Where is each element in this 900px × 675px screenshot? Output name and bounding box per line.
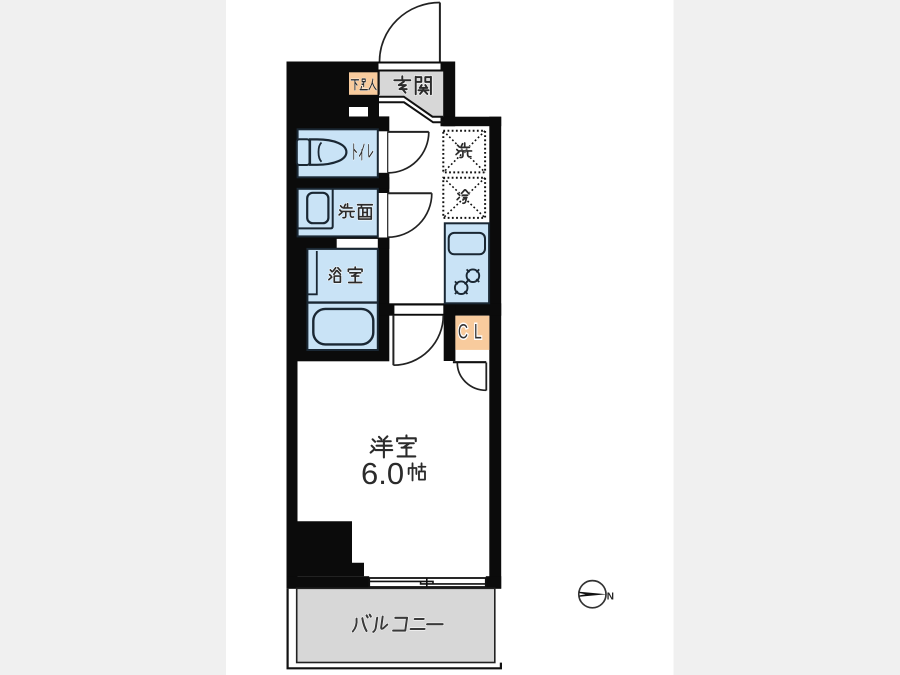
svg-text:N: N	[607, 592, 614, 603]
svg-text:CL: CL	[458, 319, 488, 343]
svg-text:6.0: 6.0	[361, 456, 404, 491]
